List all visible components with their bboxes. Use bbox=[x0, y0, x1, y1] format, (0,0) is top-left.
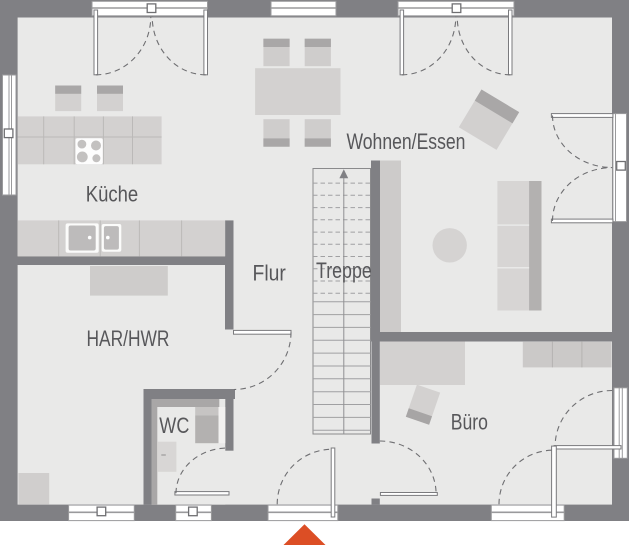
svg-text:Küche: Küche bbox=[86, 183, 138, 207]
svg-text:Wohnen/Essen: Wohnen/Essen bbox=[347, 130, 466, 154]
svg-text:HAR/HWR: HAR/HWR bbox=[87, 327, 170, 351]
svg-text:Büro: Büro bbox=[451, 411, 488, 435]
svg-text:Flur: Flur bbox=[253, 261, 286, 285]
svg-text:WC: WC bbox=[159, 414, 189, 438]
svg-text:Treppe: Treppe bbox=[316, 259, 372, 283]
